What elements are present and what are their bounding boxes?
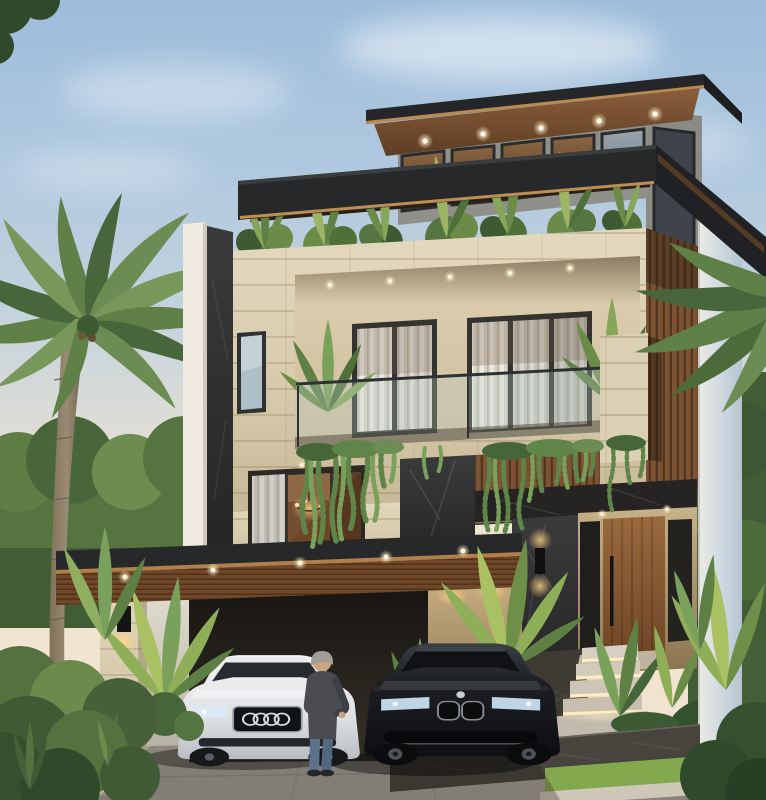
villa-render-scene [0, 0, 766, 800]
foreground-layer [0, 0, 766, 800]
palm-fronds-right [628, 219, 766, 417]
audi-grille [233, 707, 302, 732]
headlight-right [492, 697, 540, 711]
hanging-vines [296, 435, 646, 549]
jeans [309, 739, 320, 771]
headlight-left [381, 697, 429, 711]
